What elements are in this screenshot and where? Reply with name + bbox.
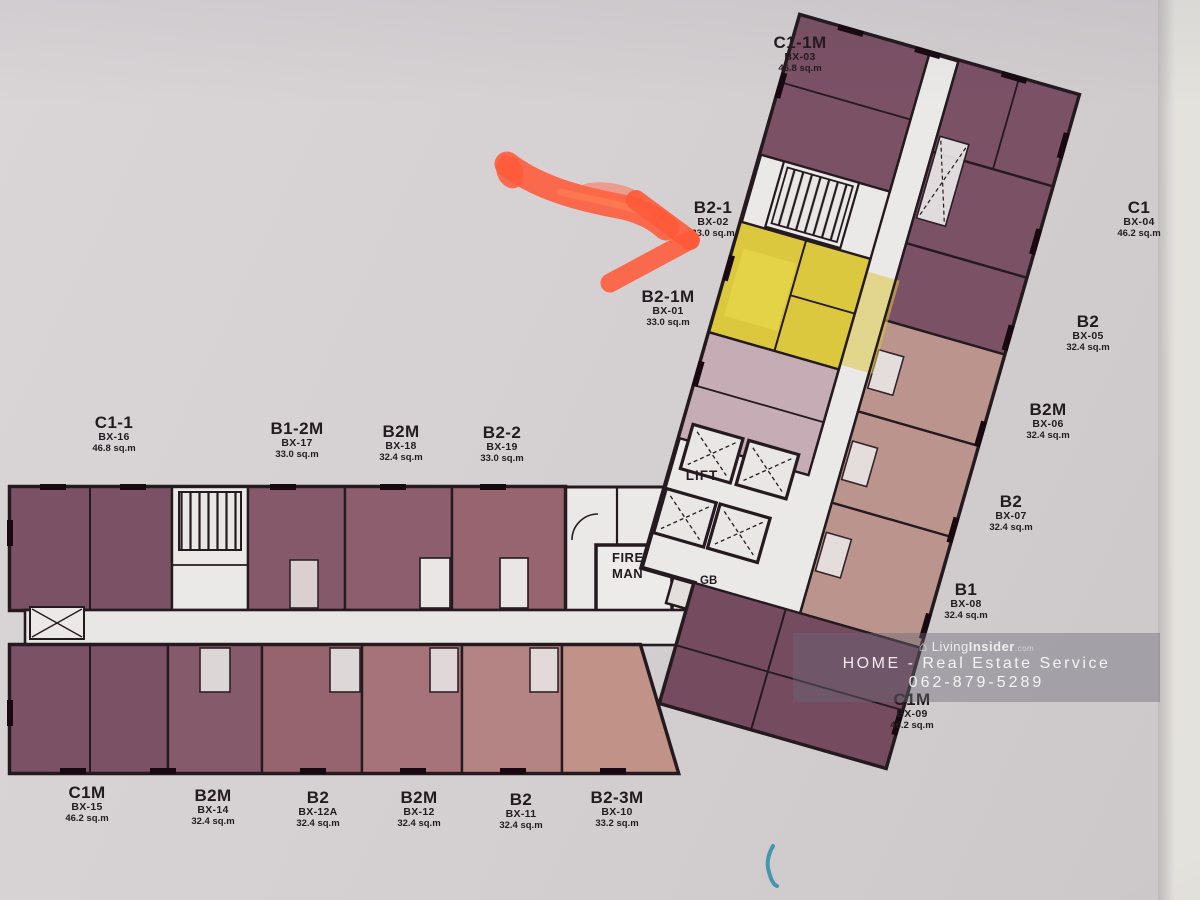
label-layer: C1-1M BX-03 46.8 sq.m B2-1 BX-02 33.0 sq… — [0, 0, 1200, 900]
unit-label-bx04: C1 BX-04 46.2 sq.m — [1117, 198, 1160, 239]
watermark: ⌂LivingInsider.com HOME - Real Estate Se… — [793, 633, 1160, 702]
house-icon: ⌂ — [919, 638, 928, 654]
unit-label-bx08: B1 BX-08 32.4 sq.m — [944, 580, 987, 621]
unit-label-bx06: B2M BX-06 32.4 sq.m — [1026, 400, 1069, 441]
watermark-brand: ⌂LivingInsider.com — [793, 638, 1160, 654]
unit-label-bx12: B2M BX-12 32.4 sq.m — [397, 788, 440, 829]
unit-name: B2M — [1026, 400, 1069, 419]
unit-area: 33.0 sq.m — [270, 450, 323, 461]
unit-name: C1-1M — [773, 33, 826, 52]
unit-name: C1 — [1117, 198, 1160, 217]
unit-name: C1-1 — [92, 413, 135, 432]
unit-area: 46.8 sq.m — [92, 444, 135, 455]
unit-name: B2-3M — [590, 788, 643, 807]
unit-area: 32.4 sq.m — [1066, 343, 1109, 354]
unit-area: 32.4 sq.m — [379, 453, 422, 464]
gb-label: GB — [700, 575, 717, 587]
floor-plan-photo: { "plan": { "units": [ {"name":"C1-1M","… — [0, 0, 1200, 900]
unit-area: 33.2 sq.m — [590, 819, 643, 830]
unit-area: 32.4 sq.m — [944, 611, 987, 622]
unit-area: 32.4 sq.m — [989, 523, 1032, 534]
unit-area: 32.4 sq.m — [1026, 431, 1069, 442]
unit-name: B2 — [499, 790, 542, 809]
unit-area: 33.0 sq.m — [480, 454, 523, 465]
unit-area: 32.4 sq.m — [296, 819, 339, 830]
unit-label-bx16: C1-1 BX-16 46.8 sq.m — [92, 413, 135, 454]
unit-label-bx17: B1-2M BX-17 33.0 sq.m — [270, 419, 323, 460]
unit-name: B2-1M — [641, 287, 694, 306]
unit-label-bx10: B2-3M BX-10 33.2 sq.m — [590, 788, 643, 829]
unit-label-bx02: B2-1 BX-02 33.0 sq.m — [691, 198, 734, 239]
unit-area: 46.8 sq.m — [773, 64, 826, 75]
unit-name: B2-2 — [480, 423, 523, 442]
unit-name: B2 — [989, 492, 1032, 511]
unit-label-bx05: B2 BX-05 32.4 sq.m — [1066, 312, 1109, 353]
lift-label: LIFT — [686, 468, 719, 483]
brand-living: Living — [932, 639, 969, 654]
unit-name: C1M — [65, 783, 108, 802]
unit-label-bx11: B2 BX-11 32.4 sq.m — [499, 790, 542, 831]
unit-area: 33.0 sq.m — [641, 318, 694, 329]
unit-label-bx14: B2M BX-14 32.4 sq.m — [191, 786, 234, 827]
unit-area: 32.4 sq.m — [397, 819, 440, 830]
unit-label-bx03: C1-1M BX-03 46.8 sq.m — [773, 33, 826, 74]
unit-area: 32.4 sq.m — [499, 821, 542, 832]
watermark-phone: 062-879-5289 — [793, 674, 1160, 692]
unit-name: B1-2M — [270, 419, 323, 438]
fireman-line2: MAN — [612, 566, 644, 582]
unit-label-bx19: B2-2 BX-19 33.0 sq.m — [480, 423, 523, 464]
fireman-line1: FIRE — [612, 550, 644, 566]
unit-label-bx18: B2M BX-18 32.4 sq.m — [379, 422, 422, 463]
unit-area: 46.2 sq.m — [890, 721, 933, 732]
watermark-service-line: HOME - Real Estate Service — [793, 655, 1160, 673]
unit-label-bx01: B2-1M BX-01 33.0 sq.m — [641, 287, 694, 328]
unit-name: B2 — [296, 788, 339, 807]
unit-area: 46.2 sq.m — [65, 814, 108, 825]
brand-tld: .com — [1015, 644, 1034, 653]
unit-name: B2M — [191, 786, 234, 805]
fireman-label: FIRE MAN — [612, 550, 644, 583]
unit-name: B2 — [1066, 312, 1109, 331]
unit-name: B1 — [944, 580, 987, 599]
unit-label-bx07: B2 BX-07 32.4 sq.m — [989, 492, 1032, 533]
unit-area: 33.0 sq.m — [691, 229, 734, 240]
unit-name: B2-1 — [691, 198, 734, 217]
unit-label-bx15: C1M BX-15 46.2 sq.m — [65, 783, 108, 824]
brand-insider: Insider — [969, 639, 1015, 654]
unit-label-bx12a: B2 BX-12A 32.4 sq.m — [296, 788, 339, 829]
unit-name: B2M — [397, 788, 440, 807]
unit-area: 46.2 sq.m — [1117, 229, 1160, 240]
unit-area: 32.4 sq.m — [191, 817, 234, 828]
unit-name: B2M — [379, 422, 422, 441]
